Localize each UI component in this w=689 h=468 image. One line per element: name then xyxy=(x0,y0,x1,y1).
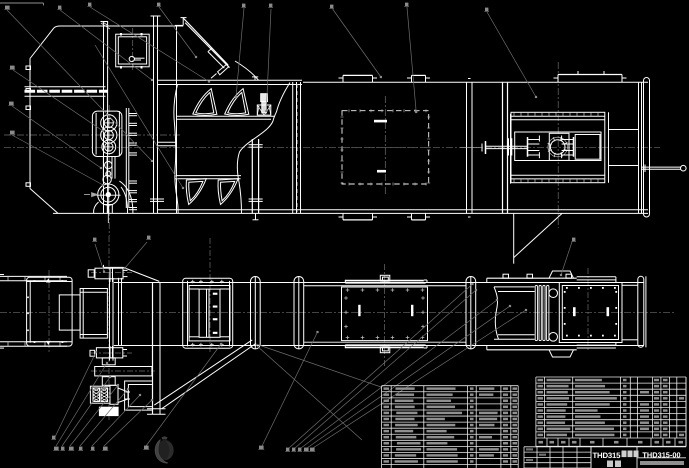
svg-text:THD315-00: THD315-00 xyxy=(642,451,680,460)
svg-text:THD315: THD315 xyxy=(593,451,622,460)
